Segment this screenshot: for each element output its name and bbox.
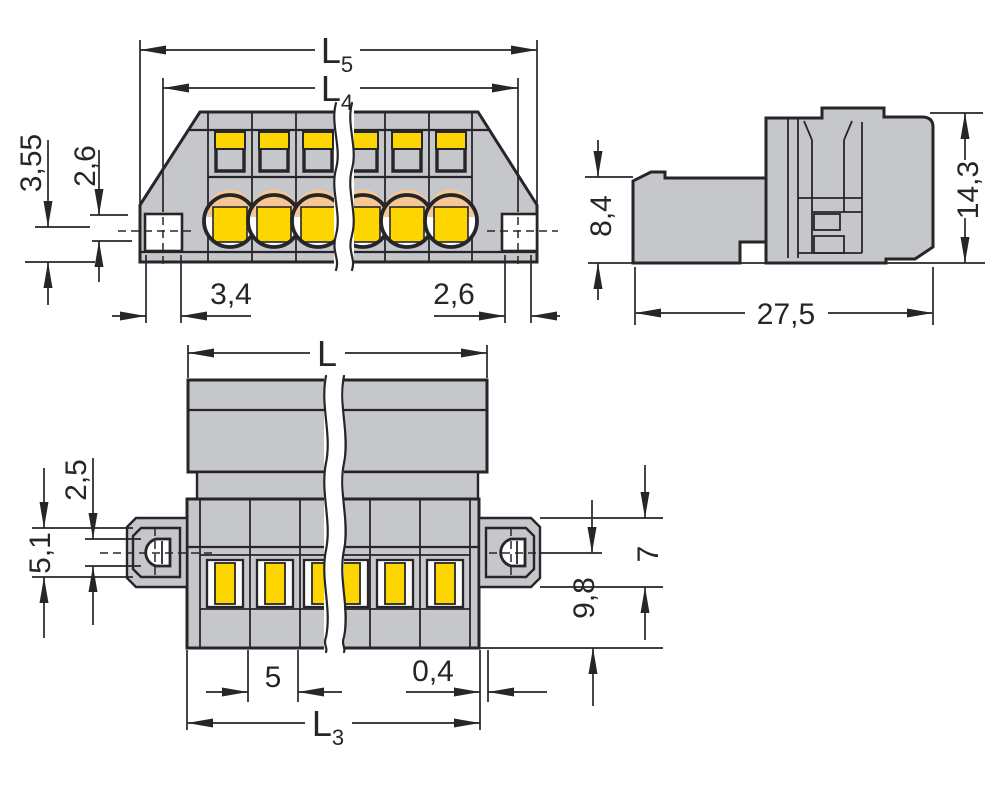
dim-label-l: L <box>317 333 337 374</box>
dim-label-9-8: 9,8 <box>568 577 601 619</box>
dim-label-l3: L3 <box>312 703 344 750</box>
dim-label-2-6-left: 2,6 <box>69 145 102 187</box>
break-symbol-front <box>334 103 354 270</box>
dim-label-3-4: 3,4 <box>210 278 252 311</box>
technical-drawing-page: L5 L4 3,55 2,6 3,4 2,6 <box>0 0 1000 790</box>
break-symbol-bottom <box>324 376 346 652</box>
dim-label-14-3: 14,3 <box>952 161 985 219</box>
dim-label-0-4: 0,4 <box>412 655 454 688</box>
dim-label-pitch-5: 5 <box>265 661 282 694</box>
slot <box>377 560 413 607</box>
bottom-view: L 5,1 2,5 7 9,8 5 <box>24 333 665 750</box>
dim-label-27-5: 27,5 <box>757 298 815 331</box>
bottom-right-flange <box>479 518 540 587</box>
side-body-rear <box>766 108 933 263</box>
slot <box>427 560 463 607</box>
connector-dimension-drawing: L5 L4 3,55 2,6 3,4 2,6 <box>0 0 1000 790</box>
dim-label-2-6-bottom: 2,6 <box>433 278 475 311</box>
dim-label-8-4: 8,4 <box>585 195 618 237</box>
dim-label-3-55: 3,55 <box>15 134 48 192</box>
slot <box>207 560 243 607</box>
side-view: 8,4 14,3 27,5 <box>585 108 985 331</box>
front-view: L5 L4 3,55 2,6 3,4 2,6 <box>15 30 560 323</box>
dim-label-7: 7 <box>632 546 665 563</box>
dim-label-2-5: 2,5 <box>60 459 93 501</box>
side-body-front <box>633 172 766 263</box>
dim-label-5-1: 5,1 <box>24 532 57 574</box>
slot <box>257 560 293 607</box>
